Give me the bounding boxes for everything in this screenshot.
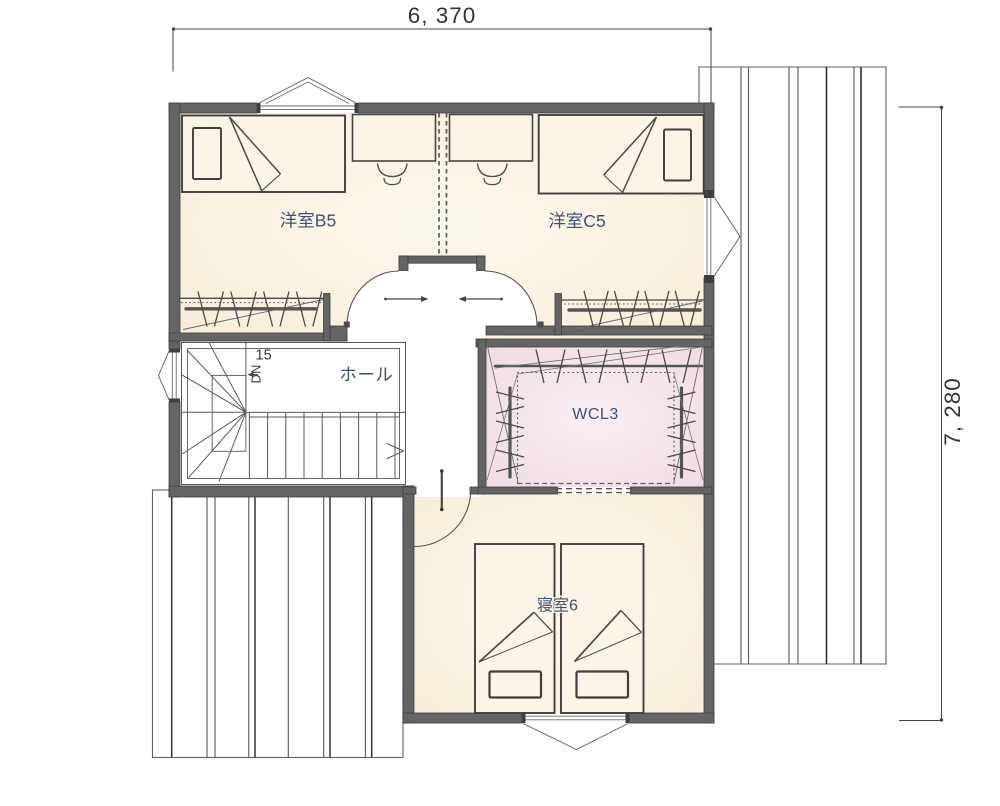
svg-text:WCL3: WCL3: [572, 406, 618, 423]
svg-text:15: 15: [256, 348, 272, 364]
svg-text:7, 280: 7, 280: [940, 377, 965, 446]
svg-text:寝室6: 寝室6: [537, 596, 578, 615]
svg-text:ホール: ホール: [339, 365, 393, 385]
svg-text:DN: DN: [250, 364, 264, 383]
svg-text:洋室C5: 洋室C5: [548, 211, 605, 231]
svg-text:6, 370: 6, 370: [408, 3, 477, 28]
svg-text:洋室B5: 洋室B5: [280, 211, 336, 231]
